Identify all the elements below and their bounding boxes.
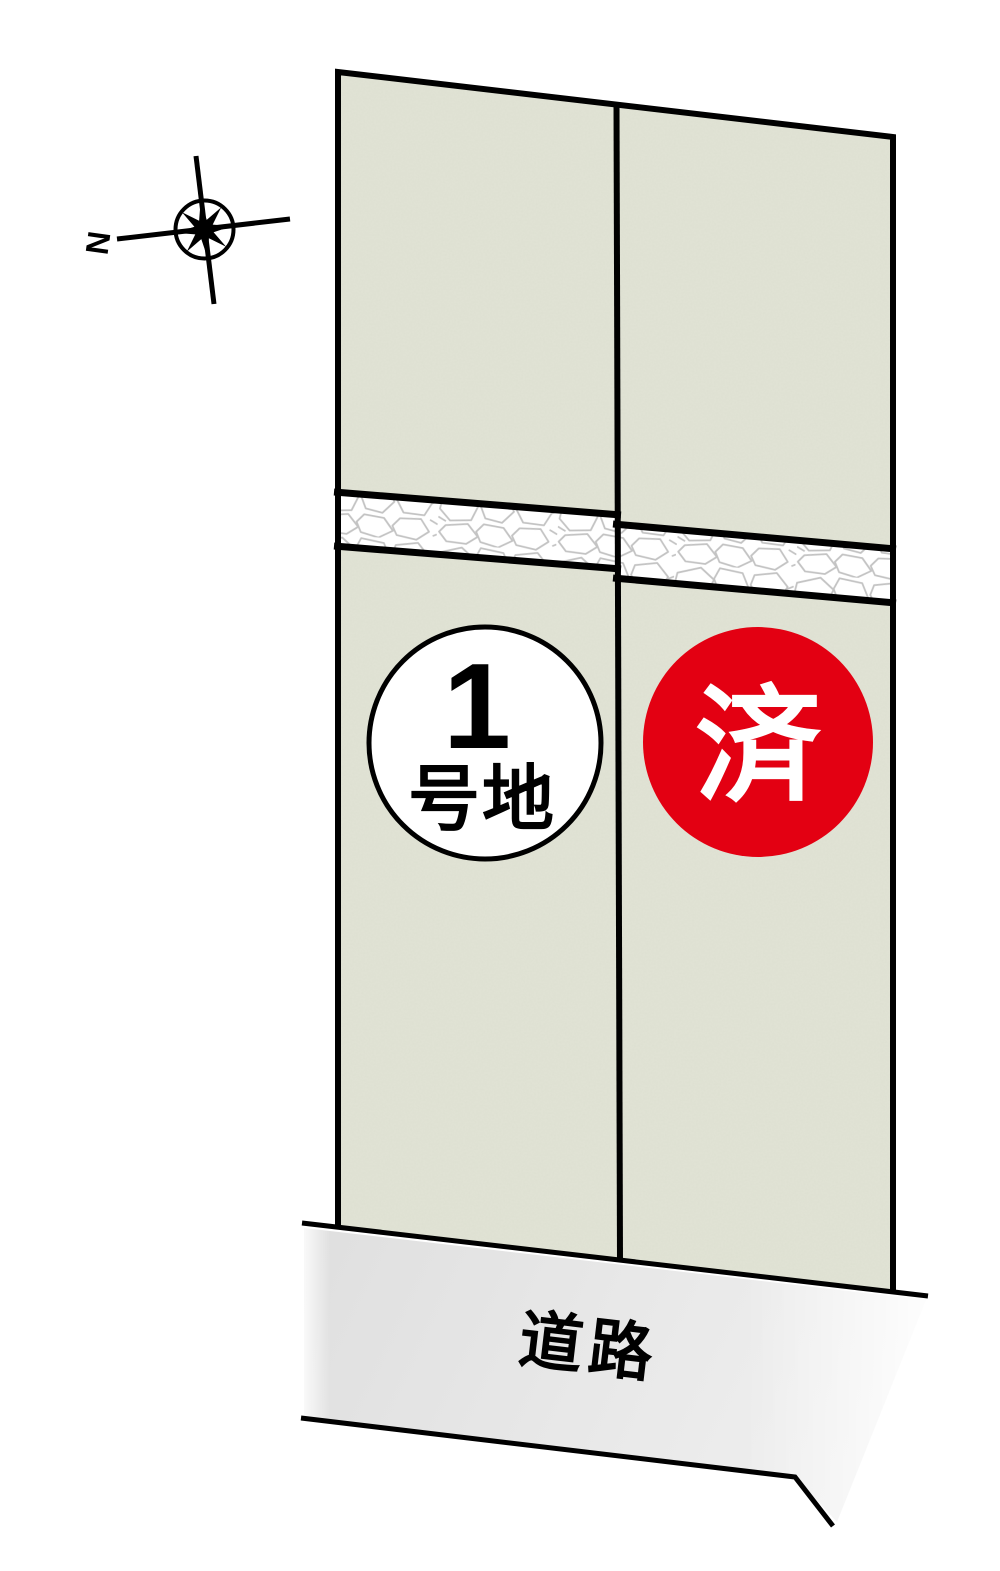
lot-number: 1 — [443, 638, 511, 774]
sold-label: 済 — [695, 676, 822, 817]
lot-1-badge: 1 号地 — [369, 627, 601, 859]
lot-map: 道路 1 号地 済 N — [0, 0, 1000, 1571]
lot-number-suffix: 号地 — [408, 760, 556, 840]
site-plan-page: 道路 1 号地 済 N — [0, 0, 1000, 1571]
compass: N — [79, 156, 290, 304]
lot-divider — [617, 104, 621, 1261]
compass-north-label: N — [79, 229, 118, 257]
lot-2-sold-badge: 済 — [643, 627, 873, 857]
